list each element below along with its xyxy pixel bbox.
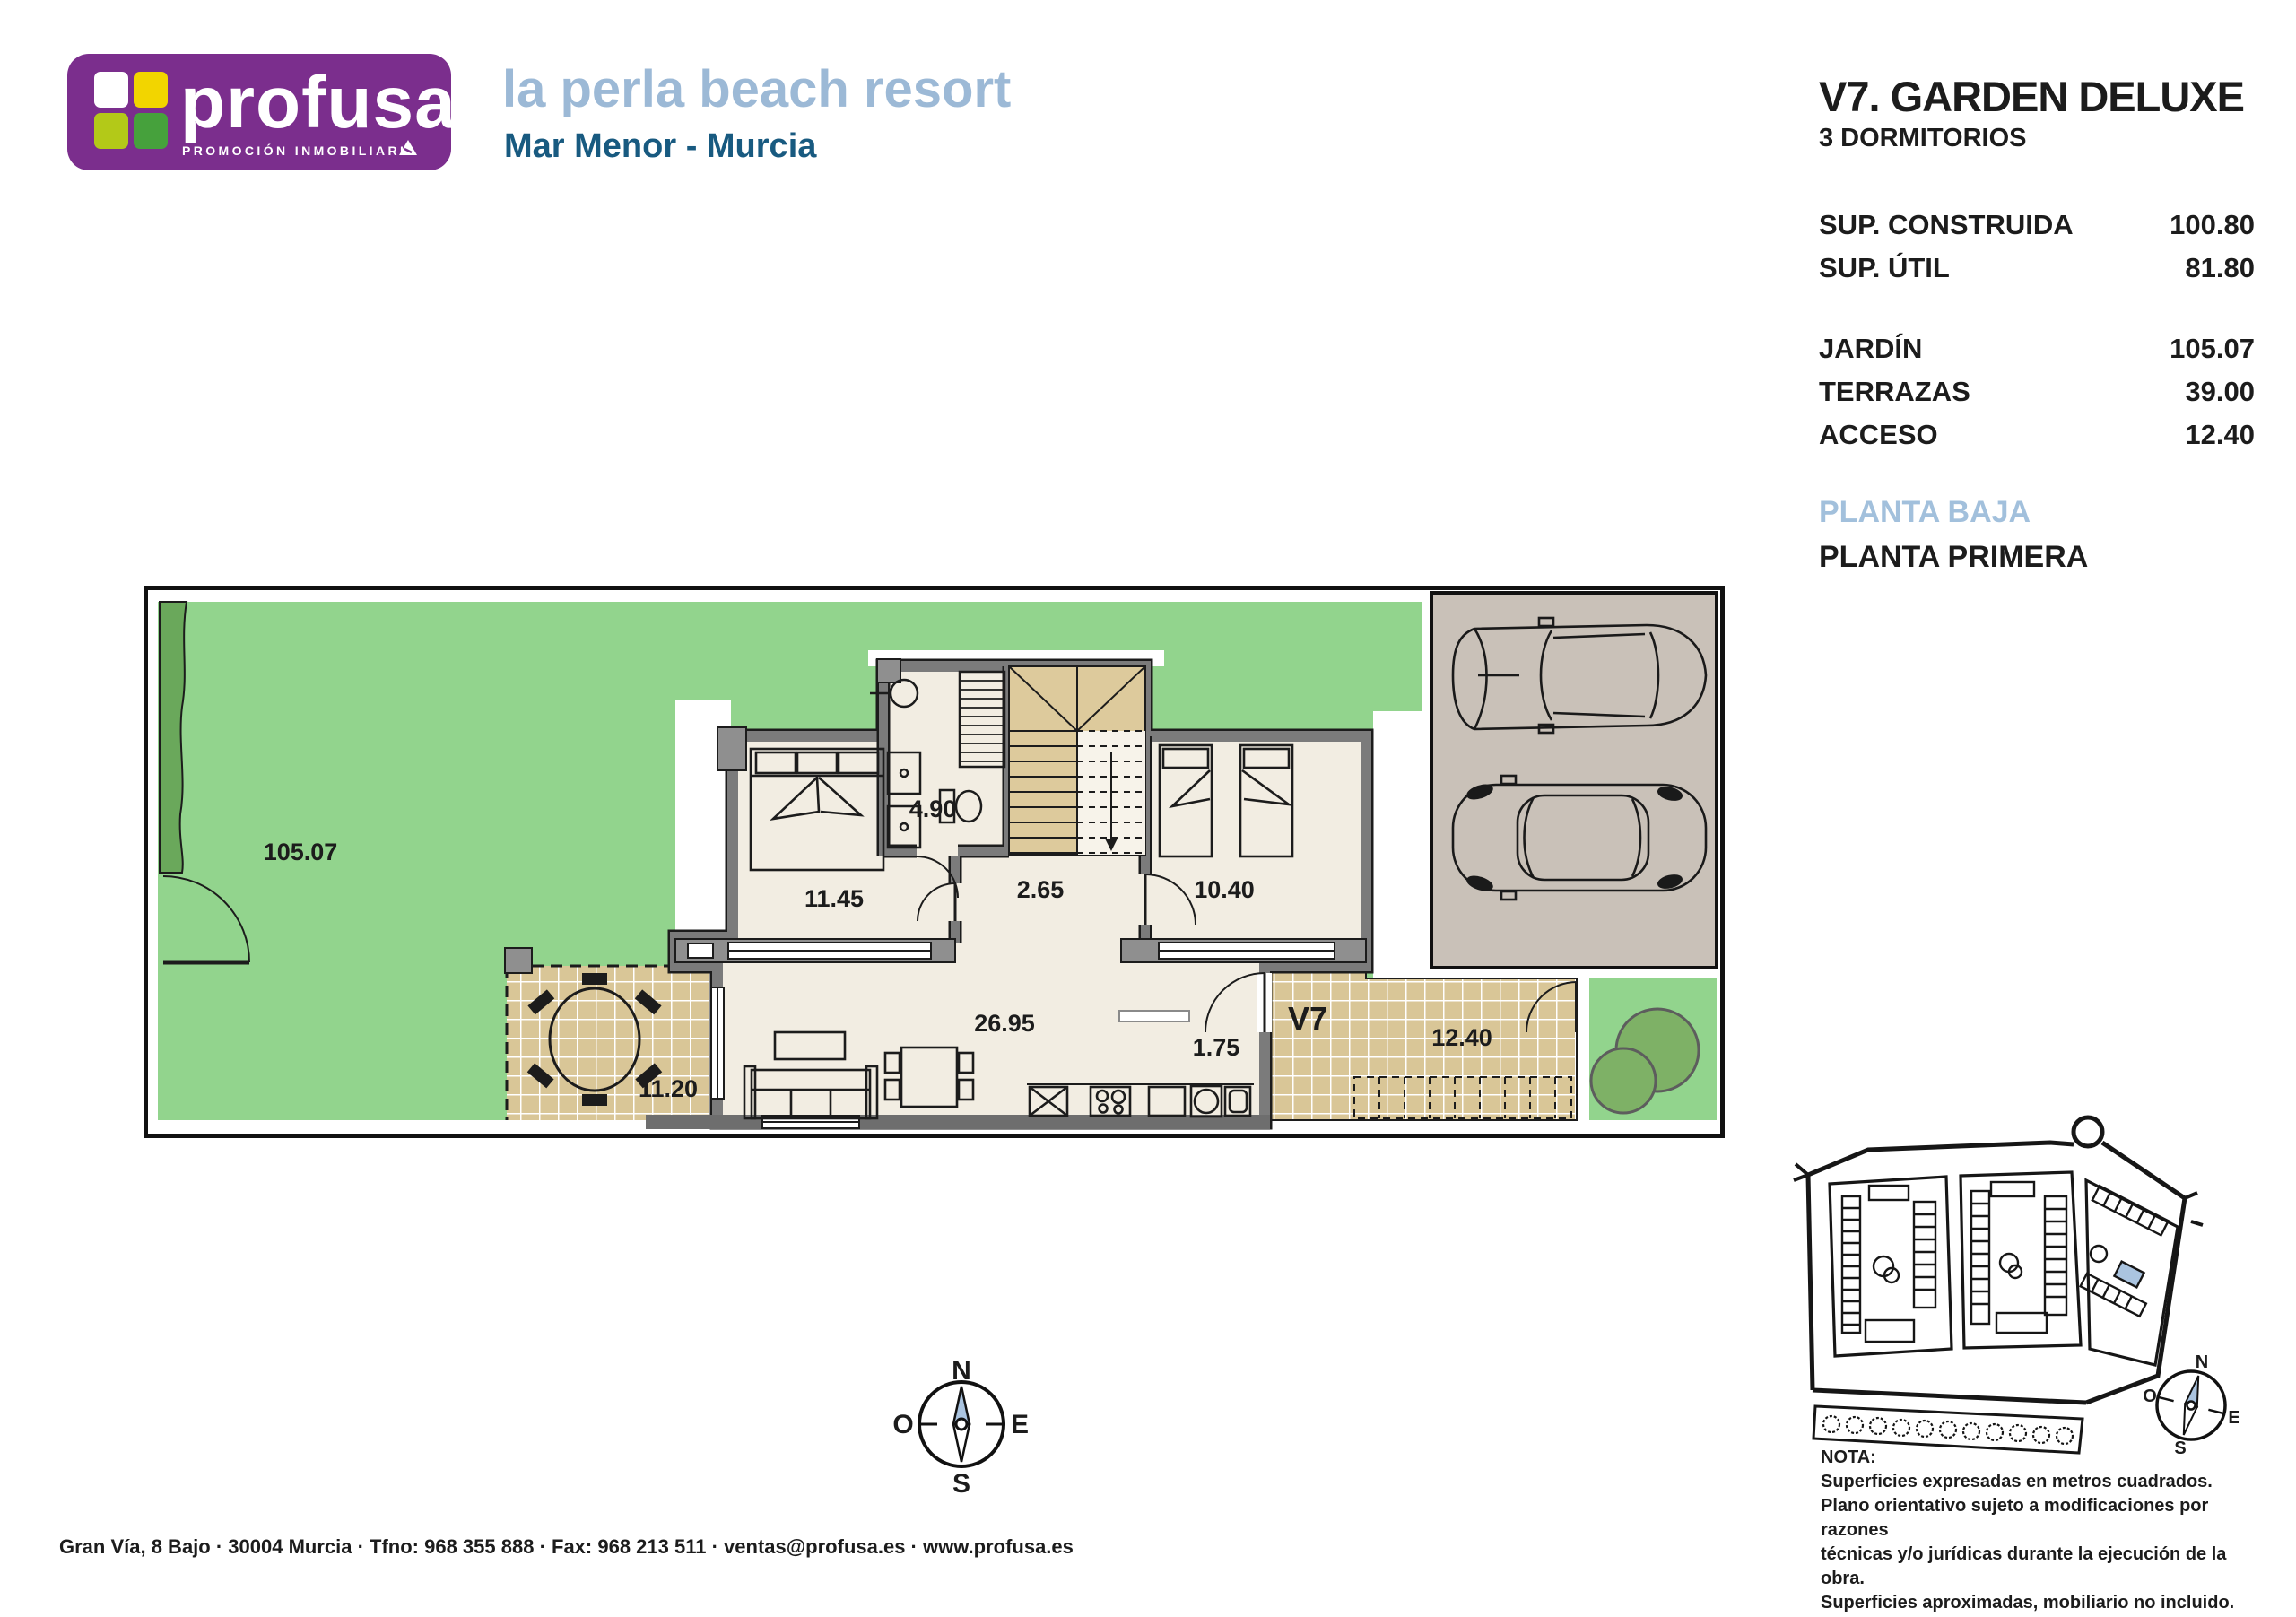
area-row: SUP. ÚTIL 81.80 bbox=[1819, 252, 2255, 284]
area-value: 81.80 bbox=[2185, 252, 2255, 284]
floor-tab-planta-baja: PLANTA BAJA bbox=[1819, 495, 2031, 530]
logo-square-yellow bbox=[134, 72, 168, 108]
area-row: ACCESO 12.40 bbox=[1819, 419, 2255, 451]
area-value: 105.07 bbox=[2170, 333, 2255, 365]
parking-area bbox=[1431, 593, 1717, 968]
living-label: 26.95 bbox=[974, 1010, 1035, 1037]
counter-divider bbox=[1119, 1011, 1189, 1021]
unit-bedrooms: 3 DORMITORIOS bbox=[1819, 124, 2027, 153]
compass-n: N bbox=[952, 1356, 971, 1386]
access-label: 12.40 bbox=[1431, 1024, 1492, 1051]
logo-squares-icon bbox=[94, 72, 171, 152]
compass-rose: N S O E bbox=[883, 1356, 1045, 1500]
hall-label: 2.65 bbox=[1017, 876, 1065, 903]
sitemap-compass-e: E bbox=[2228, 1408, 2239, 1428]
brochure-page: profusa PROMOCIÓN INMOBILIARIA la perla … bbox=[0, 0, 2296, 1617]
garden-label: 105.07 bbox=[264, 839, 338, 865]
pillar bbox=[877, 659, 900, 682]
note-title: NOTA: bbox=[1821, 1446, 2269, 1470]
floorplan: 105.07 11.45 4.90 2.65 10.40 26.95 1.75 … bbox=[143, 586, 1725, 1139]
profusa-logo: profusa PROMOCIÓN INMOBILIARIA bbox=[67, 54, 451, 170]
area-label: SUP. CONSTRUIDA bbox=[1819, 209, 2074, 241]
terrace-sliding-door bbox=[711, 966, 724, 1122]
window-icon bbox=[688, 943, 713, 958]
stairs bbox=[1009, 666, 1145, 855]
area-value: 39.00 bbox=[2185, 376, 2255, 408]
legal-note: NOTA: Superficies expresadas en metros c… bbox=[1821, 1446, 2269, 1615]
laundry-label: 1.75 bbox=[1193, 1034, 1240, 1061]
project-location: Mar Menor - Murcia bbox=[504, 127, 816, 166]
house bbox=[646, 659, 1366, 1128]
area-value: 12.40 bbox=[2185, 419, 2255, 451]
contact-footer: Gran Vía, 8 Bajo · 30004 Murcia · Tfno: … bbox=[59, 1535, 1074, 1559]
pillar bbox=[717, 727, 746, 770]
area-value: 100.80 bbox=[2170, 209, 2255, 241]
area-row: JARDÍN 105.07 bbox=[1819, 333, 2255, 365]
bedroom2-label: 10.40 bbox=[1194, 876, 1255, 903]
area-label: SUP. ÚTIL bbox=[1819, 252, 1950, 284]
window-band-bedroom2 bbox=[1121, 939, 1366, 962]
area-label: JARDÍN bbox=[1819, 333, 1922, 365]
sitemap-compass-n: N bbox=[2196, 1352, 2208, 1372]
logo-brand-text: profusa bbox=[180, 61, 457, 145]
unit-tag-label: V7 bbox=[1288, 1000, 1327, 1037]
compass-e: E bbox=[1011, 1410, 1029, 1439]
area-row: TERRAZAS 39.00 bbox=[1819, 376, 2255, 408]
area-label: ACCESO bbox=[1819, 419, 1938, 451]
logo-square-white bbox=[94, 72, 128, 108]
sitemap-compass-o: O bbox=[2143, 1387, 2157, 1406]
terrace-label: 11.20 bbox=[639, 1075, 698, 1102]
logo-square-green bbox=[134, 113, 168, 149]
project-title: la perla beach resort bbox=[502, 59, 1011, 119]
area-label: TERRAZAS bbox=[1819, 376, 1970, 408]
highlighted-unit bbox=[2114, 1262, 2144, 1288]
east-walkway bbox=[1373, 711, 1424, 978]
area-row: SUP. CONSTRUIDA 100.80 bbox=[1819, 209, 2255, 241]
logo-triangle-icon bbox=[399, 140, 417, 155]
roads bbox=[1794, 1117, 2203, 1403]
pillar bbox=[505, 948, 532, 973]
note-line: técnicas y/o jurídicas durante la ejecuc… bbox=[1821, 1543, 2269, 1591]
compass-s: S bbox=[952, 1469, 970, 1499]
access-tiled-area bbox=[1265, 966, 1577, 1120]
bathroom-label: 4.90 bbox=[909, 795, 957, 822]
window-band-bedroom1 bbox=[675, 939, 955, 962]
bedroom1-label: 11.45 bbox=[804, 885, 864, 912]
note-line: Superficies expresadas en metros cuadrad… bbox=[1821, 1470, 2269, 1494]
logo-square-lime bbox=[94, 113, 128, 149]
floor-tab-planta-primera: PLANTA PRIMERA bbox=[1819, 540, 2088, 575]
note-line: Plano orientativo sujeto a modificacione… bbox=[1821, 1494, 2269, 1543]
site-map: N O E S bbox=[1783, 1105, 2254, 1464]
note-line: Superficies aproximadas, mobiliario no i… bbox=[1821, 1591, 2269, 1615]
parcel-2 bbox=[1961, 1172, 2081, 1348]
parcel-1 bbox=[1830, 1177, 1952, 1356]
south-facade bbox=[646, 1116, 1270, 1128]
compass-o: O bbox=[892, 1410, 913, 1439]
logo-tagline: PROMOCIÓN INMOBILIARIA bbox=[182, 143, 419, 158]
unit-title: V7. GARDEN DELUXE bbox=[1819, 72, 2244, 121]
